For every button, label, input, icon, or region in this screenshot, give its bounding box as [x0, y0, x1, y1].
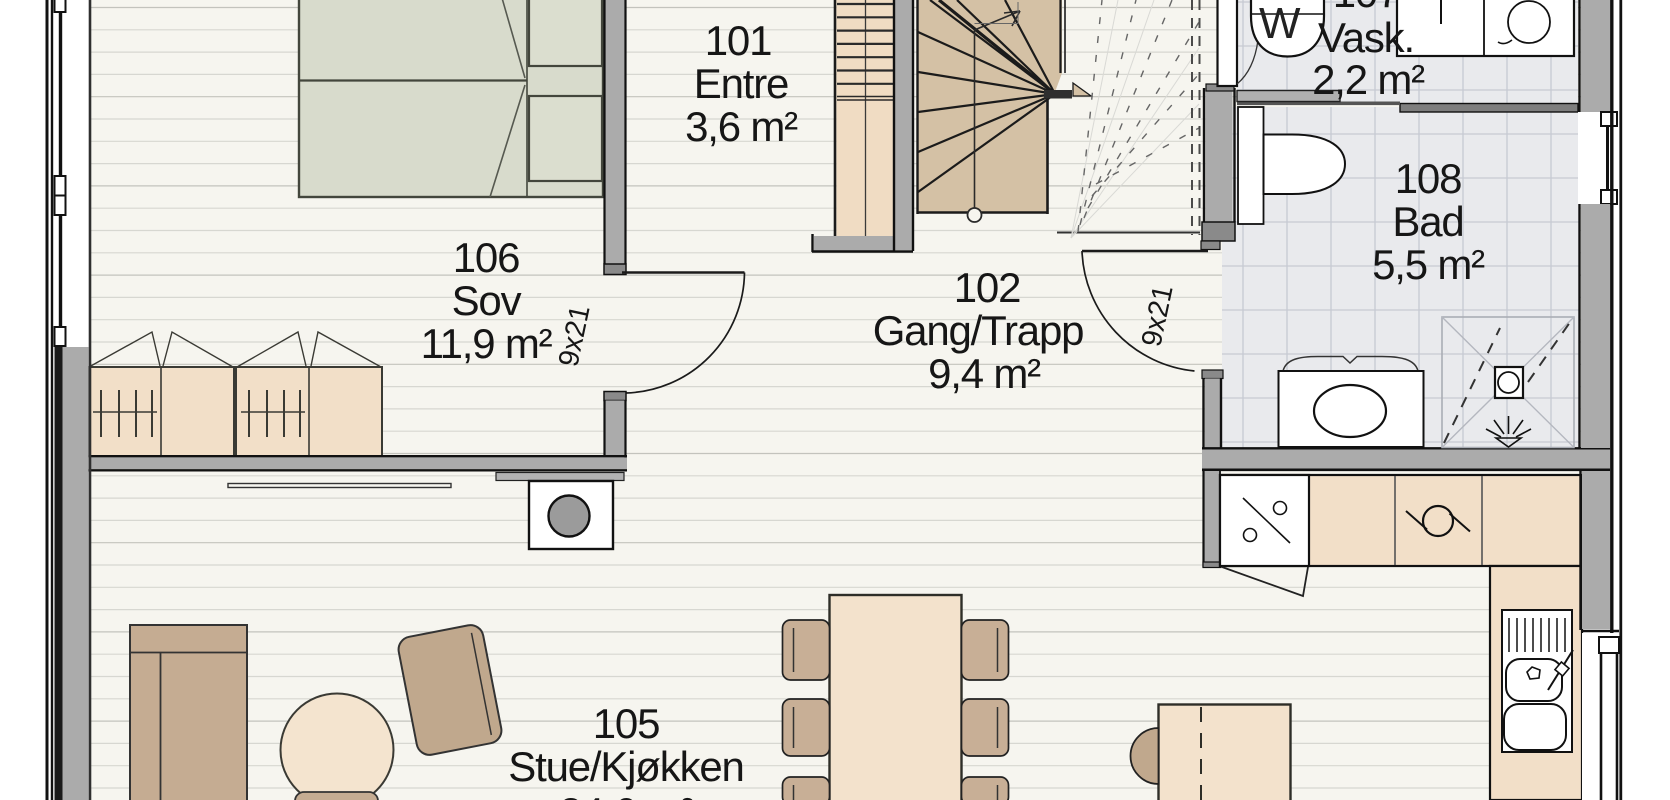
svg-text:5,5 m²: 5,5 m² — [1372, 241, 1485, 288]
svg-text:101: 101 — [705, 17, 771, 64]
svg-text:Gang/Trapp: Gang/Trapp — [873, 307, 1084, 354]
svg-text:11,9 m²: 11,9 m² — [421, 320, 553, 367]
svg-text:W: W — [1259, 0, 1301, 48]
svg-text:Vask.: Vask. — [1318, 14, 1414, 61]
svg-text:24,6 m²: 24,6 m² — [559, 789, 694, 800]
svg-text:2,2 m²: 2,2 m² — [1312, 56, 1425, 103]
svg-text:106: 106 — [453, 234, 519, 281]
svg-text:105: 105 — [593, 700, 659, 747]
svg-text:Sov: Sov — [452, 277, 522, 324]
svg-text:Bad: Bad — [1392, 198, 1463, 245]
svg-text:3,6 m²: 3,6 m² — [685, 103, 798, 150]
svg-text:102: 102 — [954, 264, 1020, 311]
svg-text:9,4 m²: 9,4 m² — [928, 350, 1041, 397]
svg-text:Entre: Entre — [694, 60, 788, 107]
svg-text:Stue/Kjøkken: Stue/Kjøkken — [508, 743, 743, 790]
svg-text:108: 108 — [1395, 155, 1461, 202]
